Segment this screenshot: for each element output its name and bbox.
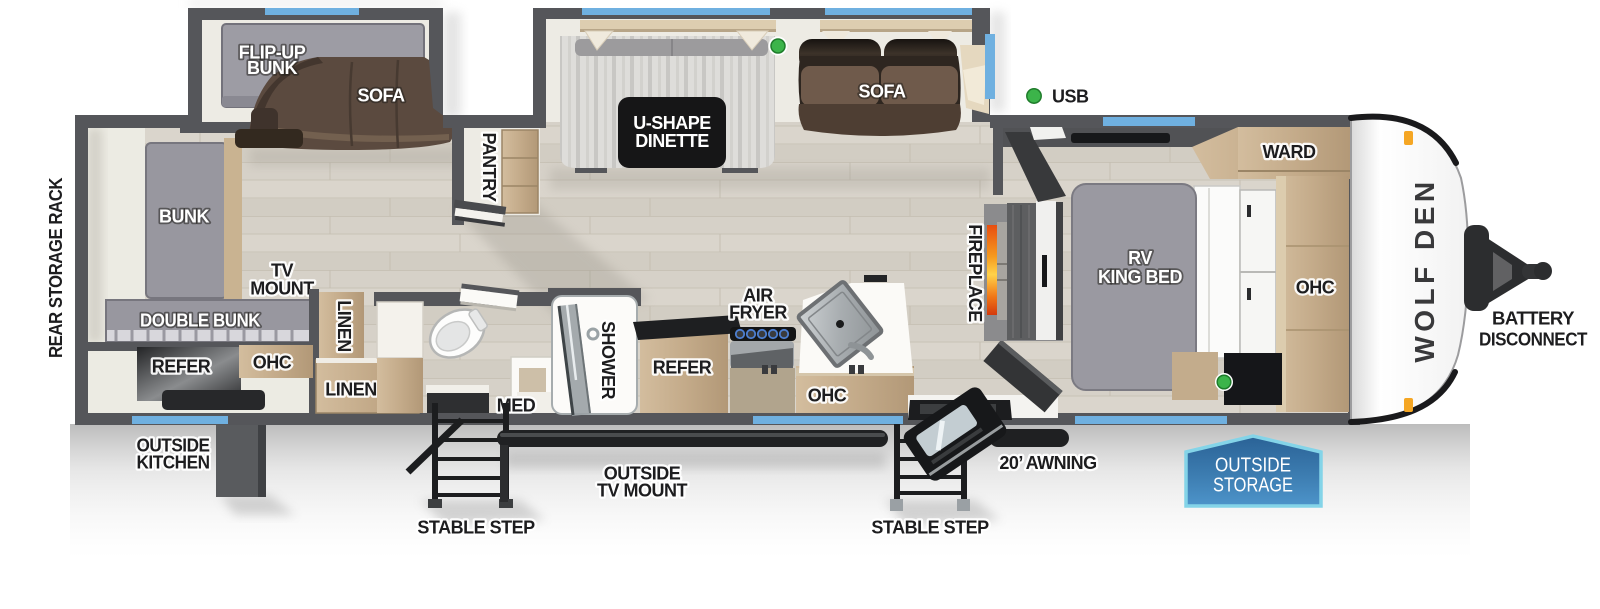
svg-text:STABLE STEP: STABLE STEP xyxy=(417,518,535,538)
svg-text:OHC: OHC xyxy=(808,386,847,406)
svg-text:20’ AWNING: 20’ AWNING xyxy=(999,453,1096,473)
svg-text:DOUBLE BUNK: DOUBLE BUNK xyxy=(140,311,260,331)
svg-text:BUNK: BUNK xyxy=(247,58,297,78)
svg-text:LINEN: LINEN xyxy=(325,380,377,400)
svg-text:LINEN: LINEN xyxy=(334,300,354,352)
svg-text:U-SHAPE: U-SHAPE xyxy=(633,113,711,133)
svg-text:USB: USB xyxy=(1052,87,1089,107)
svg-text:BATTERY: BATTERY xyxy=(1492,309,1575,329)
svg-text:RV: RV xyxy=(1128,248,1152,268)
svg-text:FRYER: FRYER xyxy=(729,303,787,323)
svg-text:OHC: OHC xyxy=(253,353,292,373)
svg-text:TV MOUNT: TV MOUNT xyxy=(597,481,687,501)
svg-text:STABLE STEP: STABLE STEP xyxy=(871,518,989,538)
svg-text:WOLF DEN: WOLF DEN xyxy=(1409,177,1440,362)
svg-text:DINETTE: DINETTE xyxy=(635,131,709,151)
svg-text:SOFA: SOFA xyxy=(858,82,906,102)
svg-text:DISCONNECT: DISCONNECT xyxy=(1479,330,1587,350)
svg-text:MED: MED xyxy=(497,396,536,416)
svg-text:OHC: OHC xyxy=(1296,278,1335,298)
svg-text:WARD: WARD xyxy=(1263,142,1316,162)
svg-text:REFER: REFER xyxy=(152,357,211,377)
svg-text:BUNK: BUNK xyxy=(159,207,209,227)
svg-text:OUTSIDE: OUTSIDE xyxy=(1215,455,1291,477)
svg-text:FIREPLACE: FIREPLACE xyxy=(965,224,985,322)
svg-text:REFER: REFER xyxy=(653,358,712,378)
svg-text:KITCHEN: KITCHEN xyxy=(137,453,210,473)
svg-text:KING BED: KING BED xyxy=(1098,267,1183,287)
svg-text:TV: TV xyxy=(271,261,293,281)
svg-text:STORAGE: STORAGE xyxy=(1213,475,1293,497)
svg-text:MOUNT: MOUNT xyxy=(250,279,314,299)
svg-text:SOFA: SOFA xyxy=(357,86,405,106)
svg-text:REAR STORAGE RACK: REAR STORAGE RACK xyxy=(46,178,66,358)
svg-text:PANTRY: PANTRY xyxy=(479,133,499,202)
svg-text:SHOWER: SHOWER xyxy=(598,321,618,400)
